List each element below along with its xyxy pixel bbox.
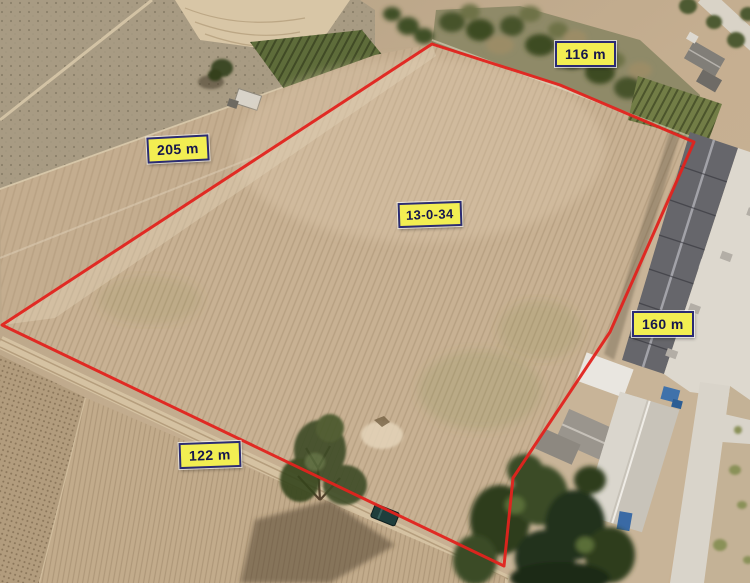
aerial-photo: 116 m 205 m 13-0-34 160 m 122 m bbox=[0, 0, 750, 583]
scene-canvas bbox=[0, 0, 750, 583]
dimension-label-right: 160 m bbox=[632, 311, 694, 337]
dimension-label-top: 116 m bbox=[555, 41, 616, 67]
dimension-label-left: 205 m bbox=[146, 134, 209, 163]
area-label: 13-0-34 bbox=[398, 201, 462, 228]
dimension-label-bottom: 122 m bbox=[179, 441, 242, 469]
